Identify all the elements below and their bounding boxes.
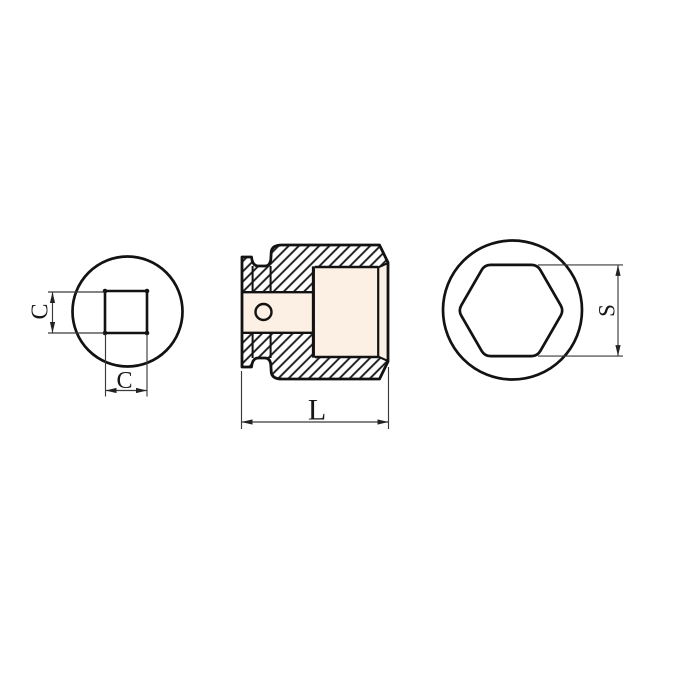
hex-socket-end-view: S xyxy=(443,241,623,380)
hex-socket-opening xyxy=(460,265,562,356)
dim-label-c-bottom: C xyxy=(116,368,132,394)
dim-arrow-left xyxy=(106,388,117,393)
dim-label-c-side: C xyxy=(28,303,54,319)
dim-arrow-up xyxy=(50,292,55,303)
dim-arrow-right xyxy=(136,388,147,393)
technical-drawing-canvas: C C xyxy=(0,0,700,700)
socket-drawing: C C xyxy=(0,0,700,700)
section-view: L xyxy=(242,245,389,429)
section-square-drive-hole xyxy=(242,293,313,333)
section-hex-bore xyxy=(315,267,378,356)
dim-label-across-flats: S xyxy=(595,304,620,317)
dim-arrow-up xyxy=(615,265,620,276)
section-bore-mouth-chamfer xyxy=(378,264,388,361)
square-drive-hole xyxy=(105,291,147,333)
dim-label-length: L xyxy=(308,394,326,427)
dimension-c-side: C xyxy=(28,292,105,333)
dim-arrow-right xyxy=(378,419,389,424)
dim-arrow-left xyxy=(242,419,253,424)
square-corner-dot xyxy=(145,289,150,294)
dim-arrow-down xyxy=(50,322,55,333)
square-drive-end-view: C C xyxy=(28,257,183,397)
dim-arrow-down xyxy=(615,345,620,356)
dimension-across-flats: S xyxy=(538,265,623,356)
drive-end-body-circle xyxy=(73,257,183,367)
square-corner-dot xyxy=(103,289,108,294)
